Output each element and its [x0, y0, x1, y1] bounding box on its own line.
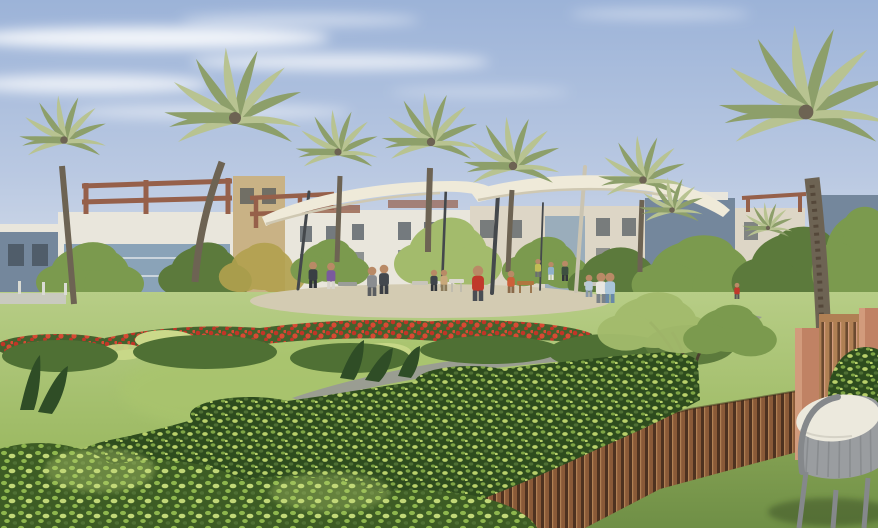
plaza-ground [250, 284, 610, 318]
gate-top-rail [819, 314, 861, 323]
rendering-image: Landscaped community park with palm tree… [0, 0, 878, 528]
scene-canvas: Landscaped community park with palm tree… [0, 0, 878, 528]
